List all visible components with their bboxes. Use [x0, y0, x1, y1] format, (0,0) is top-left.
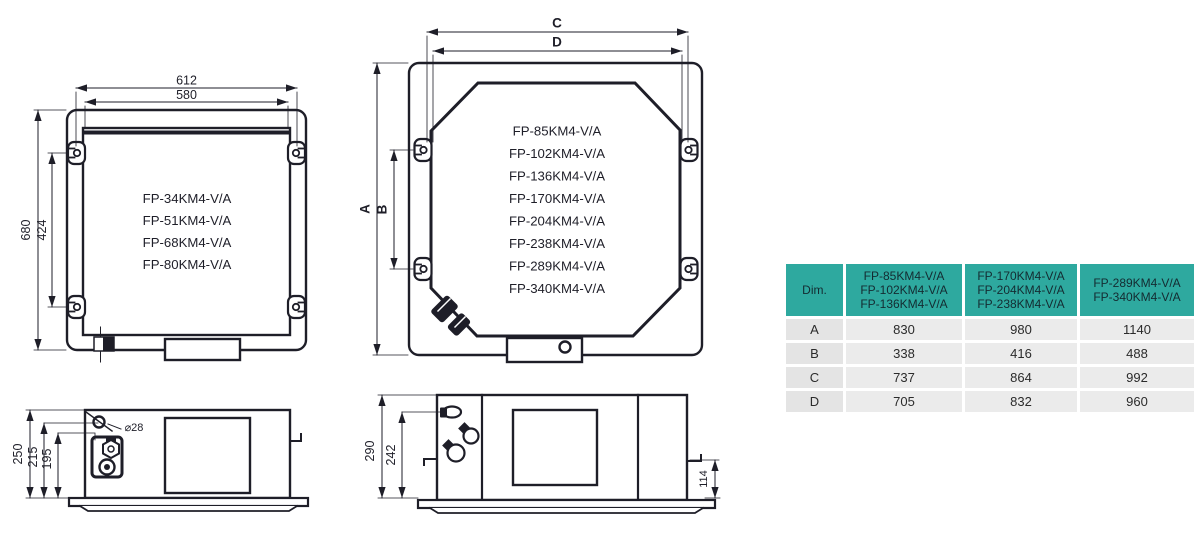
spec-cell-A-2: 980: [965, 319, 1077, 340]
plan-view-small-units: 612 580 680 424 FP-34KM4-V/A FP-51KM4-V/…: [19, 74, 306, 363]
spec-table-header-group-1: FP-85KM4-V/A FP-102KM4-V/A FP-136KM4-V/A: [846, 264, 962, 316]
spec-cell-A-1: 830: [846, 319, 962, 340]
spec-table-header-dim: Dim.: [786, 264, 843, 316]
unit-body-outline: [83, 128, 290, 335]
side-view-small-units: ⌀28 250 215 195: [11, 410, 308, 511]
model-name: FP-102KM4-V/A: [509, 146, 605, 161]
model-name: FP-68KM4-V/A: [143, 235, 232, 250]
hanger-clip: [681, 258, 698, 280]
pipe-nut: [103, 440, 119, 458]
model-group-line: FP-238KM4-V/A: [977, 297, 1064, 311]
ceiling-panel-lip: [430, 508, 703, 513]
spec-table-header-group-3: FP-289KM4-V/A FP-340KM4-V/A: [1080, 264, 1194, 316]
dim-label-250: 250: [11, 444, 25, 465]
ceiling-panel: [69, 498, 308, 506]
spec-cell-B-2: 416: [965, 343, 1077, 364]
spec-row-label-A: A: [786, 319, 843, 340]
dimension-114: 114: [690, 460, 720, 498]
side-view-large-units: 290 242 114: [363, 395, 720, 513]
hanger-clip: [288, 296, 305, 318]
model-name: FP-204KM4-V/A: [509, 214, 605, 229]
model-name: FP-136KM4-V/A: [509, 169, 605, 184]
model-name: FP-238KM4-V/A: [509, 236, 605, 251]
spec-row-label-B: B: [786, 343, 843, 364]
dim-label-580: 580: [176, 88, 197, 102]
drain-outlet-fill: [103, 337, 114, 351]
spec-cell-C-2: 864: [965, 367, 1077, 388]
hanger-clip: [68, 142, 85, 164]
model-name: FP-85KM4-V/A: [513, 124, 602, 139]
model-name: FP-51KM4-V/A: [143, 213, 232, 228]
model-list-small: FP-34KM4-V/A FP-51KM4-V/A FP-68KM4-V/A F…: [143, 191, 232, 272]
model-group-line: FP-289KM4-V/A: [1093, 276, 1180, 290]
model-name: FP-170KM4-V/A: [509, 191, 605, 206]
outer-panel-outline: [67, 110, 306, 350]
spec-cell-B-1: 338: [846, 343, 962, 364]
model-group-line: FP-170KM4-V/A: [977, 269, 1064, 283]
spec-cell-B-3: 488: [1080, 343, 1194, 364]
dimension-242: 242: [384, 412, 442, 498]
dim-label-612: 612: [176, 74, 197, 88]
model-group-line: FP-85KM4-V/A: [864, 269, 945, 283]
spec-cell-C-1: 737: [846, 367, 962, 388]
dimension-spec-table: Dim. FP-85KM4-V/A FP-102KM4-V/A FP-136KM…: [786, 264, 1194, 412]
dimension-580: 580: [85, 88, 288, 127]
dimension-290: 290: [363, 395, 437, 498]
dimension-424: 424: [35, 153, 67, 307]
spec-row-label-D: D: [786, 391, 843, 412]
spec-cell-D-2: 832: [965, 391, 1077, 412]
dim-label-hole-diameter: ⌀28: [125, 422, 144, 434]
dim-label-C: C: [552, 16, 562, 31]
model-group-line: FP-136KM4-V/A: [860, 297, 947, 311]
dim-label-242: 242: [384, 445, 398, 466]
model-group-line: FP-340KM4-V/A: [1093, 290, 1180, 304]
dim-label-215: 215: [26, 447, 40, 468]
dim-label-195: 195: [40, 449, 54, 470]
ceiling-panel-lip: [80, 506, 297, 511]
spec-table-header-group-2: FP-170KM4-V/A FP-204KM4-V/A FP-238KM4-V/…: [965, 264, 1077, 316]
hanger-clip: [415, 139, 432, 161]
dim-label-680: 680: [19, 220, 33, 241]
dim-label-114: 114: [698, 470, 710, 488]
side-tab: [290, 434, 301, 441]
indicator-hole: [560, 342, 571, 353]
hanger-clip: [681, 139, 698, 161]
hanger-clip: [68, 296, 85, 318]
dim-label-D: D: [552, 35, 562, 50]
dim-label-290: 290: [363, 441, 377, 462]
dimension-B: B: [375, 150, 414, 269]
plan-view-large-units: C D A B FP-85KM4-V/A FP-102KM4-V/A FP-13: [358, 16, 703, 363]
model-group-line: FP-102KM4-V/A: [860, 283, 947, 297]
dim-label-424: 424: [35, 220, 49, 241]
hanger-clip: [415, 258, 432, 280]
model-name: FP-340KM4-V/A: [509, 281, 605, 296]
dim-label-A: A: [358, 204, 373, 214]
hanger-clip: [288, 142, 305, 164]
unit-body-octagon: [431, 83, 680, 336]
spec-cell-A-3: 1140: [1080, 319, 1194, 340]
spec-cell-D-3: 960: [1080, 391, 1194, 412]
spec-row-label-C: C: [786, 367, 843, 388]
ceiling-panel: [418, 500, 715, 508]
dim-label-B: B: [375, 204, 390, 214]
spec-cell-C-3: 992: [1080, 367, 1194, 388]
model-group-line: FP-204KM4-V/A: [977, 283, 1064, 297]
pipe-plate: [92, 436, 122, 477]
model-name: FP-80KM4-V/A: [143, 257, 232, 272]
model-name: FP-34KM4-V/A: [143, 191, 232, 206]
receiver-box: [165, 339, 240, 360]
model-name: FP-289KM4-V/A: [509, 259, 605, 274]
spec-cell-D-1: 705: [846, 391, 962, 412]
side-tab: [424, 459, 437, 465]
